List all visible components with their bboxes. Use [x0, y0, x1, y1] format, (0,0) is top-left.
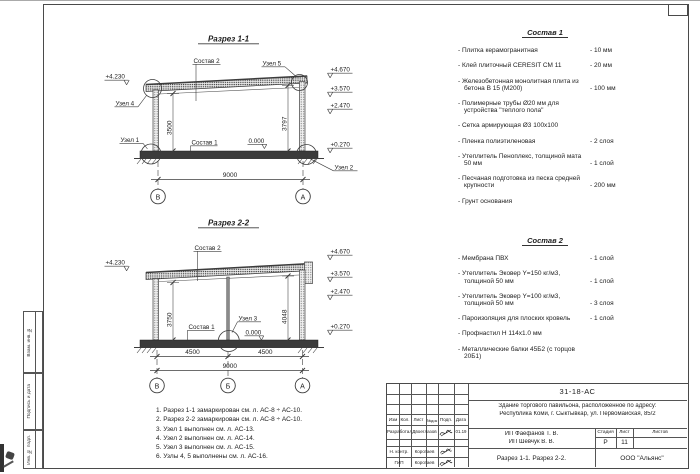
elevation-label: +2.470 [331, 289, 351, 296]
zero-level-label: 0.000 [249, 138, 265, 145]
note-line: 4. Узел 2 выполнен см. л. АС-14. [156, 434, 302, 443]
roof-edge-beam [305, 262, 313, 284]
elevation-label: +0.270 [331, 142, 351, 149]
dim-right-label: 4048 [282, 309, 289, 324]
axis-letter: В [155, 383, 160, 390]
tb-object-line1: Здание торгового павильона, расположенно… [470, 403, 685, 409]
callout-uzel5: Узел 5 [263, 60, 282, 67]
callout-sostav2: Состав 2 [195, 245, 222, 252]
material-value: - 20 мм [590, 62, 630, 69]
callout-uzel4: Узел 4 [116, 100, 135, 107]
notes-list: 1. Разрез 1-1 замаркирован см. л. АС-8 ÷… [156, 406, 302, 462]
wall-right [300, 82, 306, 152]
callout-sostav2: Состав 2 [194, 58, 221, 65]
tb-sheets-label: Листов [633, 430, 687, 435]
zero-level-label: 0.000 [246, 329, 262, 336]
elevation-label: +2.470 [331, 103, 351, 110]
dim-left-label: 3500 [167, 120, 174, 135]
material-value: - 1 слой [590, 278, 630, 285]
tb-sheet-value: 11 [616, 439, 633, 446]
material-name: - Клей плиточный CERESIT CM 11 [458, 62, 588, 69]
axis-letter: Б [226, 383, 231, 390]
material-row: - Утеплитель Пеноплекс, толщиной мата 50… [458, 153, 630, 167]
elevation-label-left: +4.230 [106, 260, 126, 267]
signature [439, 427, 453, 438]
callout-uzel2: Узел 2 [335, 164, 354, 171]
material-name: - Утеплитель Эковер Y=100 кг/м3, толщино… [458, 293, 588, 307]
material-value: - 10 мм [590, 47, 630, 54]
elevation-label-left: +4.230 [106, 74, 126, 81]
dim-bay-label: 4500 [185, 349, 200, 356]
material-value: - 2 слоя [590, 138, 630, 145]
material-row: - Песчаная подготовка из песка средней к… [458, 175, 630, 189]
tb-object-line2: Республика Коми, г. Сыктывкар, ул. Перво… [470, 411, 685, 417]
dim-span-label: 9000 [223, 363, 238, 370]
elevation-label: +4.670 [331, 249, 351, 256]
signature [439, 446, 453, 456]
section2-drawing: Разрез 2-2 4500 4500 9000 В [105, 219, 353, 393]
sostav2-list: Состав 2 - Мембрана ПВХ- 1 слой - Утепли… [458, 237, 630, 368]
material-name: - Грунт основания [458, 198, 588, 205]
tb-col-dok: №док [426, 418, 438, 423]
tb-col-data: Дата [454, 417, 468, 422]
material-name: - Мембрана ПВХ [458, 255, 588, 262]
material-row: - Плитка керамогранитная- 10 мм [458, 47, 630, 54]
tb-company: ООО "Альянс" [597, 455, 687, 462]
material-name: - Песчаная подготовка из песка средней к… [458, 175, 588, 189]
sostav2-title: Состав 2 [522, 237, 568, 246]
material-name: - Пленка полиэтиленовая [458, 138, 588, 145]
signature [439, 457, 453, 468]
tb-sheet-label: Лист [616, 430, 633, 435]
tb-name-korotaev2: Коротаев [411, 460, 438, 465]
material-name: - Сетка армирующая Ø3 100х100 [458, 122, 588, 129]
material-row: - Железобетонная монолитная плита из бет… [458, 78, 630, 92]
tb-col-izm: Изм [387, 417, 399, 422]
material-name: - Утеплитель Пеноплекс, толщиной мата 50… [458, 153, 588, 167]
section1-title: Разрез 1-1 [208, 35, 250, 44]
floor-slab [140, 340, 318, 348]
tb-name-dvoeglazov: Двоеглазов [411, 429, 438, 434]
floor-slab [140, 151, 318, 159]
axis-letter: В [156, 194, 161, 201]
material-row: - Грунт основания [458, 198, 630, 205]
dim-left-label: 3750 [167, 312, 174, 327]
elevation-label: +0.270 [331, 324, 351, 331]
material-row: - Пароизоляция для плоских кровель- 1 сл… [458, 315, 630, 322]
callout-uzel3: Узел 3 [239, 315, 258, 322]
sostav1-title: Состав 1 [522, 29, 568, 38]
material-row: - Металлические балки 45Б2 (с торцов 20Б… [458, 346, 630, 360]
material-row: - Профнастил Н 114х1.0 мм [458, 330, 630, 337]
material-name: - Утеплитель Эковер Y=150 кг/м3, толщино… [458, 270, 588, 284]
material-value: - 200 мм [590, 182, 630, 189]
material-name: - Профнастил Н 114х1.0 мм [458, 330, 588, 337]
tb-role-razrabotal: Разработал [387, 429, 411, 434]
title-block: Изм Кол. Лист №док Подп. Дата Разработал… [386, 383, 689, 469]
wall-right [300, 270, 306, 340]
material-value: - 3 слоя [590, 300, 630, 307]
wall-left [153, 279, 159, 341]
tb-stage-label: Стадия [595, 430, 616, 435]
material-row: - Полимерные трубы Ø20 мм для устройства… [458, 100, 630, 114]
material-name: - Плитка керамогранитная [458, 47, 588, 54]
wall-left [153, 90, 159, 151]
material-name: - Полимерные трубы Ø20 мм для устройства… [458, 100, 588, 114]
tb-date: 01.19 [454, 429, 468, 434]
material-row: - Сетка армирующая Ø3 100х100 [458, 122, 630, 129]
material-name: - Пароизоляция для плоских кровель [458, 315, 588, 322]
note-line: 1. Разрез 1-1 замаркирован см. л. АС-8 ÷… [156, 406, 302, 415]
callout-uzel1: Узел 1 [121, 137, 140, 144]
dim-bay-label: 4500 [258, 349, 273, 356]
note-line: 5. Узел 3 выполнен см. л. АС-15. [156, 443, 302, 452]
note-line: 2. Разрез 2-2 замаркирован см. л. АС-8 ÷… [156, 415, 302, 424]
elevation-label: +3.570 [331, 271, 351, 278]
dim-right-label: 3797 [282, 116, 289, 131]
tb-role-gip: ГИП [387, 460, 411, 465]
tb-drawing-title: Разрез 1-1. Разрез 2-2. [470, 455, 593, 462]
tb-doc-number: 31-18-АС [468, 387, 687, 396]
callout-sostav1: Состав 1 [189, 324, 216, 331]
material-name: - Металлические балки 45Б2 (с торцов 20Б… [458, 346, 588, 360]
material-row: - Мембрана ПВХ- 1 слой [458, 255, 630, 262]
material-row: - Пленка полиэтиленовая- 2 слоя [458, 138, 630, 145]
callout-sostav1: Состав 1 [192, 139, 219, 146]
section1-drawing: Разрез 1-1 9000 В А [105, 35, 358, 204]
material-row: - Клей плиточный CERESIT CM 11- 20 мм [458, 62, 630, 69]
note-line: 3. Узел 1 выполнен см. л. АС-13. [156, 425, 302, 434]
elevation-label: +4.670 [331, 67, 351, 74]
material-row: - Утеплитель Эковер Y=150 кг/м3, толщино… [458, 270, 630, 284]
axis-letter: А [300, 383, 305, 390]
tb-client-line1: ИП Фаефанов Т. В. [470, 431, 593, 437]
tb-col-podp: Подп. [438, 417, 454, 422]
tb-name-korotaev: Коротаев [411, 449, 438, 454]
sostav1-list: Состав 1 - Плитка керамогранитная- 10 мм… [458, 29, 630, 213]
material-row: - Утеплитель Эковер Y=100 кг/м3, толщино… [458, 293, 630, 307]
tb-client-line2: ИП Шевчук В. В. [470, 439, 593, 445]
note-line: 6. Узлы 4, 5 выполнены см. л. АС-16. [156, 452, 302, 461]
section2-title: Разрез 2-2 [208, 219, 250, 228]
material-name: - Железобетонная монолитная плита из бет… [458, 78, 588, 92]
tb-col-list: Лист [411, 417, 426, 422]
material-value: - 100 мм [590, 85, 630, 92]
tb-role-nkontr: Н. контр. [387, 449, 411, 454]
material-value: - 1 слой [590, 315, 630, 322]
dim-span-label: 9000 [223, 172, 238, 179]
tb-col-kol: Кол. [399, 417, 411, 422]
axis-letter: А [301, 194, 306, 201]
material-value: - 1 слой [590, 255, 630, 262]
drawing-sheet: Взам. инв. № Подпись и дата Инв. № подл.… [0, 0, 700, 474]
material-value: - 1 слой [590, 160, 630, 167]
tb-stage-value: Р [595, 439, 616, 446]
elevation-label: +3.570 [331, 86, 351, 93]
